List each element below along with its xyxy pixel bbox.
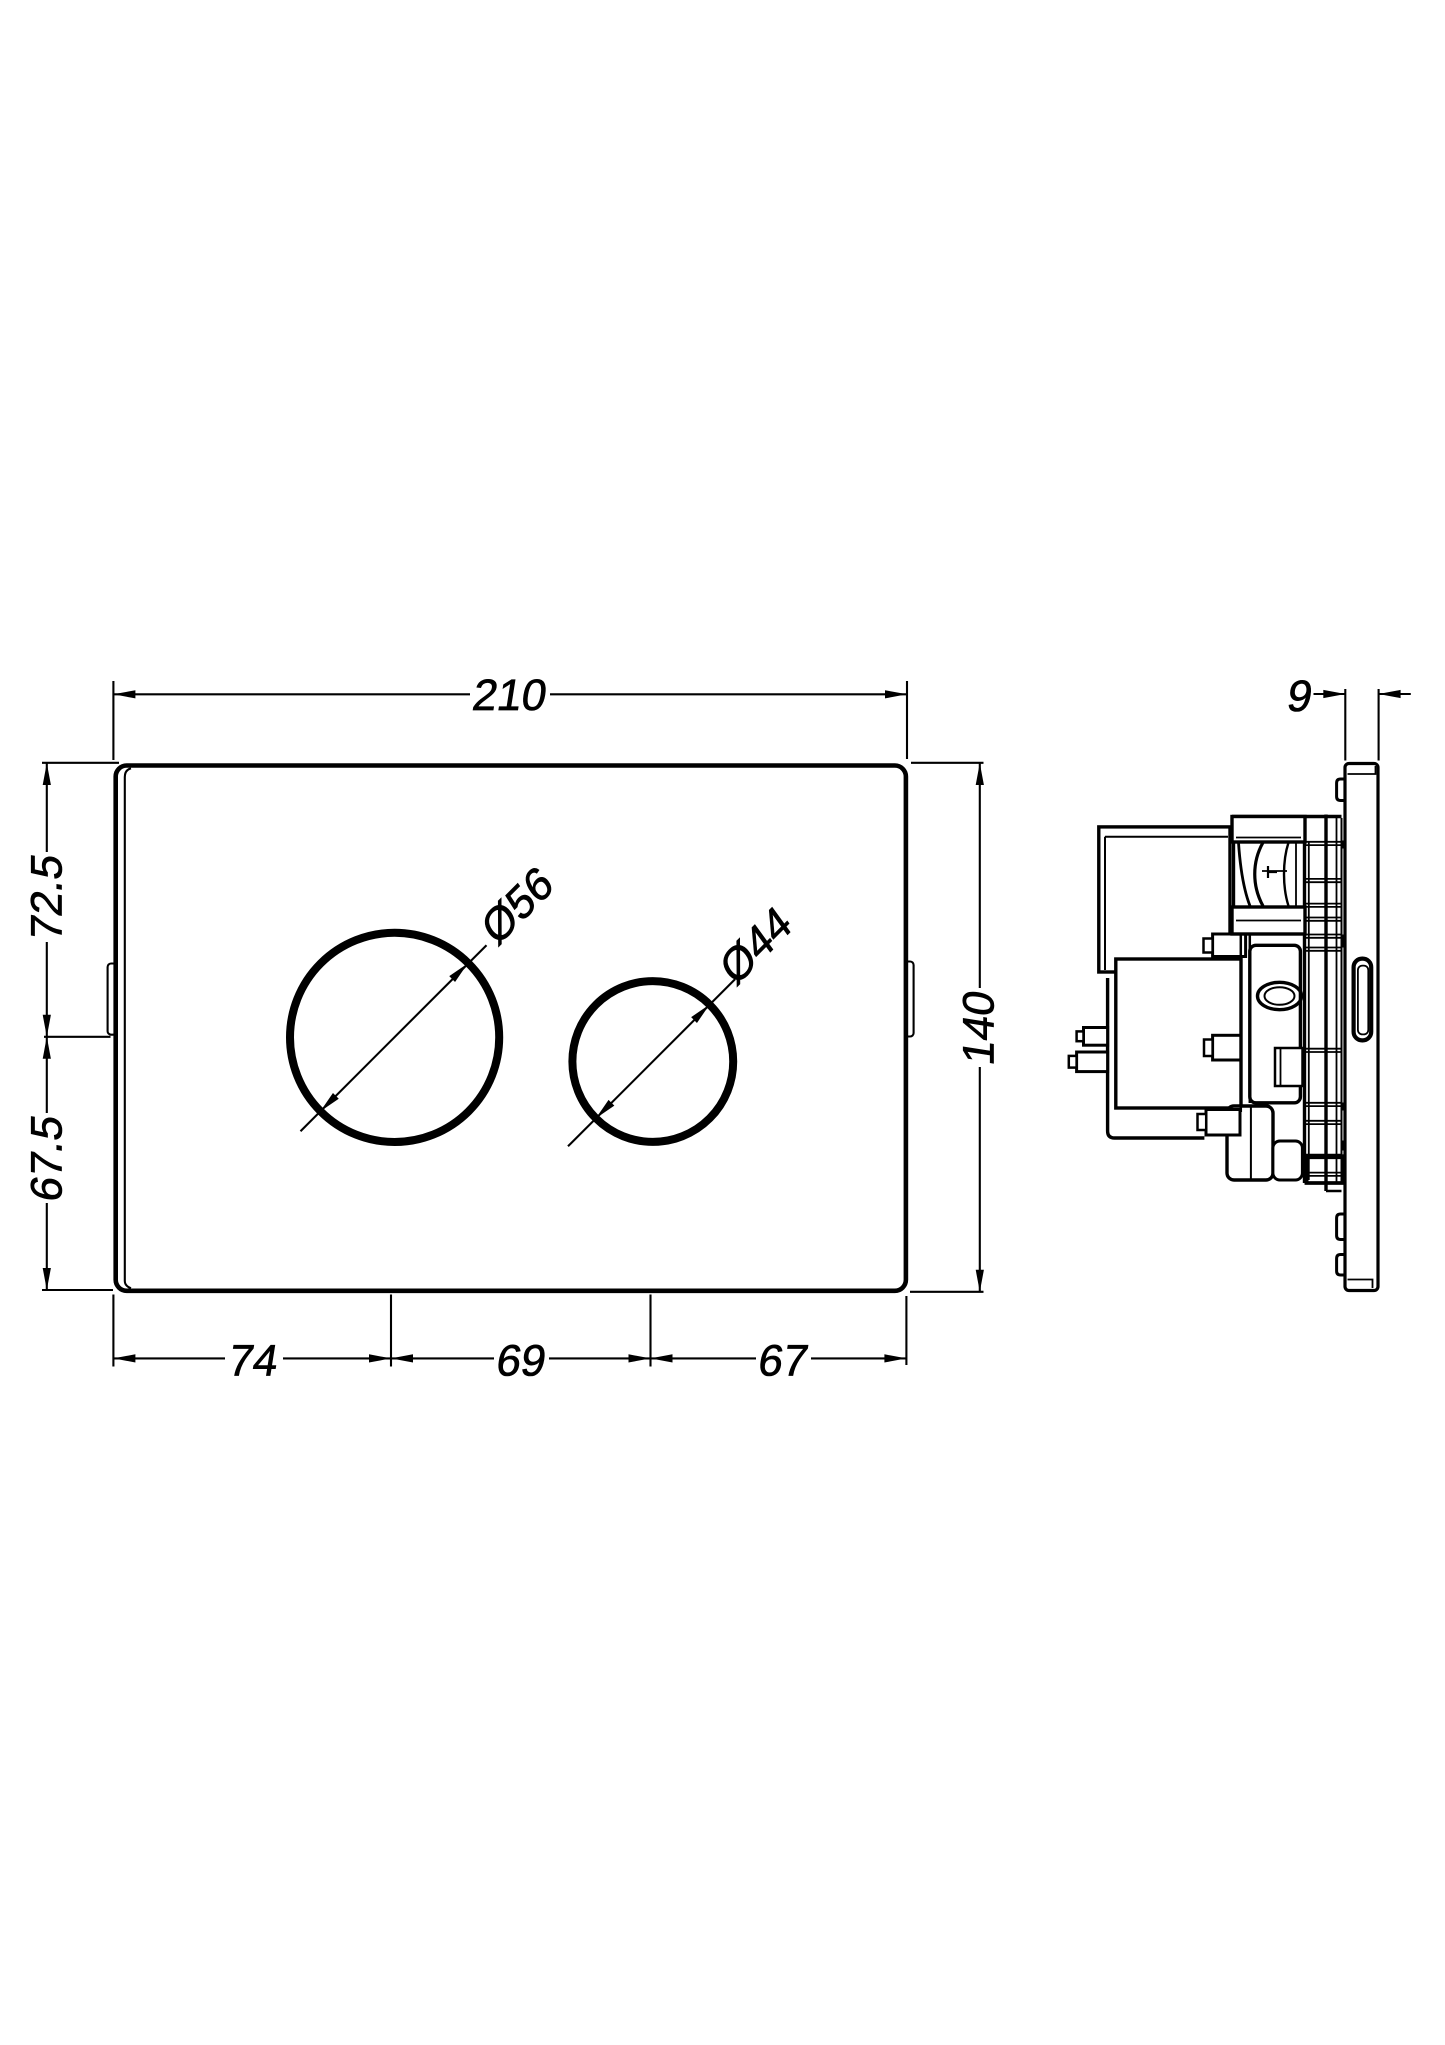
svg-text:140: 140 <box>955 987 1004 1068</box>
svg-text:67: 67 <box>755 1337 812 1386</box>
svg-text:67.5: 67.5 <box>23 1111 72 1204</box>
svg-text:69: 69 <box>493 1337 550 1386</box>
svg-text:74: 74 <box>225 1337 282 1386</box>
svg-text:210: 210 <box>469 671 550 720</box>
svg-text:72.5: 72.5 <box>23 850 72 943</box>
